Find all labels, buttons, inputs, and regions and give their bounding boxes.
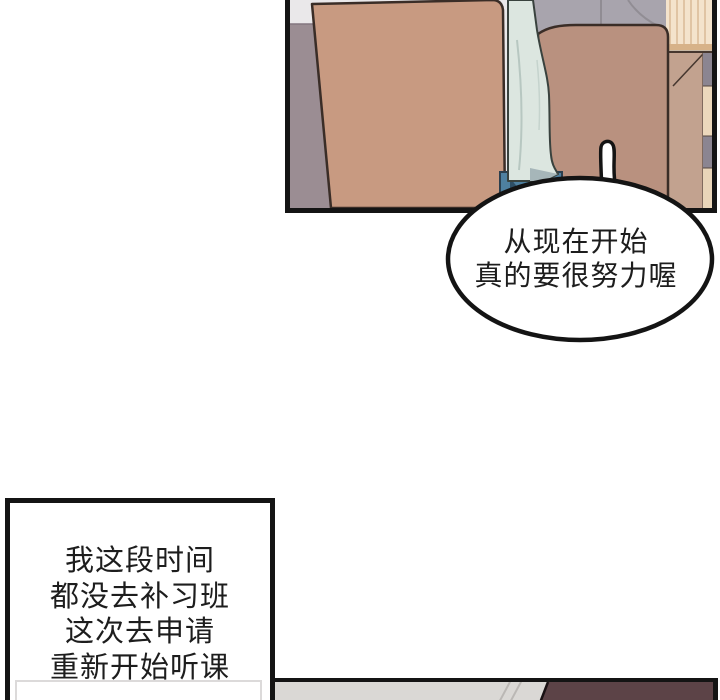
caption-line: 都没去补习班 <box>10 579 270 615</box>
caption-box: 我这段时间 都没去补习班 这次去申请 重新开始听课 <box>5 498 275 700</box>
hair-shape <box>538 682 713 700</box>
panel-bottom <box>269 678 718 700</box>
speech-bubble-text: 从现在开始 真的要很努力喔 <box>430 225 720 293</box>
shelf-band <box>666 44 712 50</box>
bubble-line: 真的要很努力喔 <box>430 259 720 293</box>
nested-caption-box <box>15 680 262 700</box>
caption-line: 这次去申请 <box>10 614 270 650</box>
caption-text: 我这段时间 都没去补习班 这次去申请 重新开始听课 <box>10 543 270 685</box>
cabinet-beige <box>703 86 712 136</box>
caption-line: 我这段时间 <box>10 543 270 579</box>
motion-lines <box>496 682 522 700</box>
bubble-line: 从现在开始 <box>430 225 720 259</box>
comic-page: 从现在开始 真的要很努力喔 我这段时间 都没去补习班 这次去申请 重新开始听课 <box>0 0 720 700</box>
panel-bottom-art <box>274 682 713 700</box>
speech-bubble: 从现在开始 真的要很努力喔 <box>430 133 720 347</box>
